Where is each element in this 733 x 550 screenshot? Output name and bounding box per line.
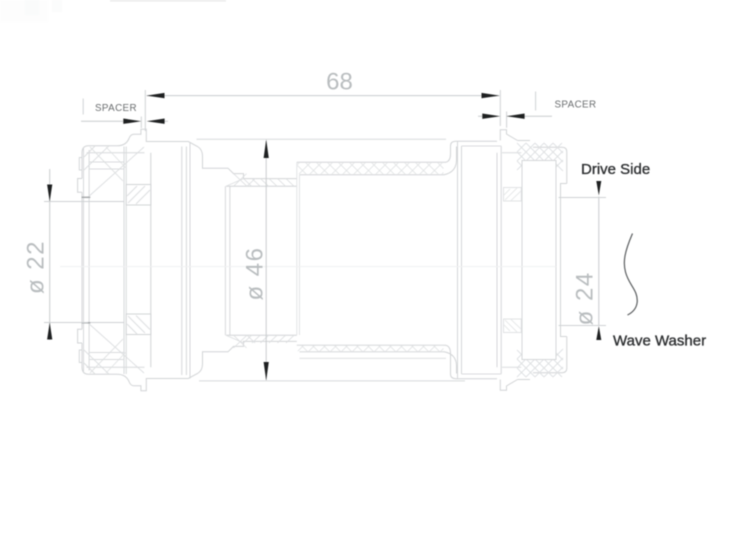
svg-text:ø 46: ø 46 bbox=[242, 246, 269, 300]
svg-text:SPACER: SPACER bbox=[555, 100, 597, 111]
svg-text:SPACER: SPACER bbox=[95, 103, 137, 114]
svg-text:Wave Washer: Wave Washer bbox=[613, 333, 706, 350]
svg-text:Drive Side: Drive Side bbox=[581, 161, 650, 178]
svg-text:ø 22: ø 22 bbox=[23, 240, 50, 294]
svg-text:68: 68 bbox=[326, 69, 353, 96]
svg-text:ø 24: ø 24 bbox=[572, 271, 599, 325]
